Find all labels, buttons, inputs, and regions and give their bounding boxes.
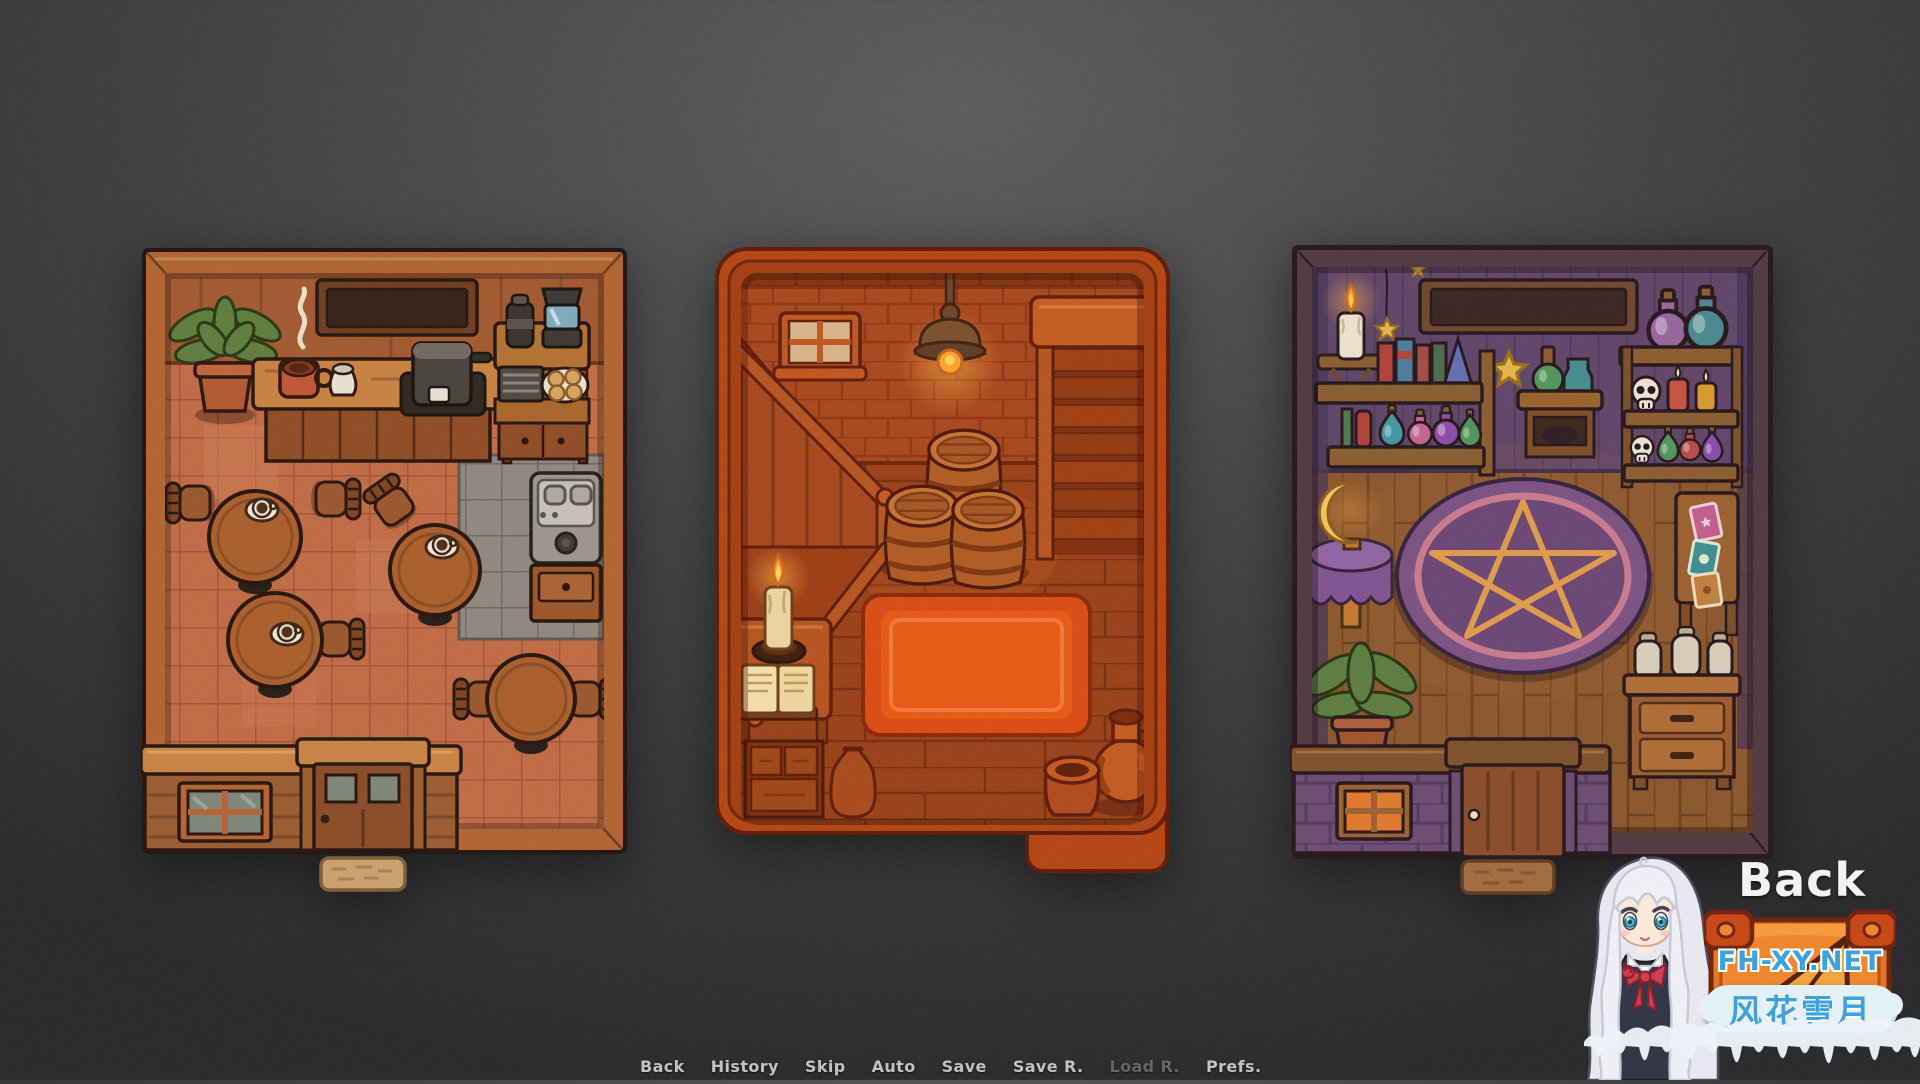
cafe-espresso-machine — [401, 343, 491, 415]
location-choice-witch-shop[interactable] — [1290, 243, 1775, 905]
witch-moon-lamp-table — [1310, 477, 1392, 627]
menu-item-skip[interactable]: Skip — [805, 1057, 846, 1076]
menu-item-save[interactable]: Save — [942, 1057, 987, 1076]
witch-facade — [1290, 739, 1610, 857]
witch-door — [1446, 739, 1580, 857]
menu-item-save-r[interactable]: Save R. — [1013, 1057, 1084, 1076]
cellar-window — [774, 313, 866, 380]
cafe-facade — [141, 739, 461, 850]
cafe-lower-cabinet — [531, 565, 601, 621]
cellar-crates — [745, 741, 823, 817]
cellar-pot — [1045, 757, 1099, 815]
witch-shop-illustration — [1290, 243, 1775, 905]
cafe-pastry-plate — [542, 368, 588, 402]
tarot-card — [1690, 503, 1723, 542]
menu-item-auto[interactable]: Auto — [872, 1057, 916, 1076]
cafe-window — [179, 783, 271, 841]
quick-menu-bar: Back History Skip Auto Save Save R. Load… — [640, 1057, 1261, 1076]
location-choice-cafe[interactable] — [141, 247, 628, 895]
menu-item-prefs[interactable]: Prefs. — [1206, 1057, 1261, 1076]
witch-sign-board — [1420, 280, 1637, 333]
menu-item-history[interactable]: History — [711, 1057, 779, 1076]
snow-icicles — [1584, 1016, 1920, 1080]
watermark-site-name: FH-XY.NET — [1698, 946, 1902, 977]
cafe-chair — [311, 479, 360, 519]
cafe-cream-pitcher — [330, 364, 356, 395]
cellar-open-book — [739, 665, 817, 719]
cellar-room-illustration — [715, 247, 1170, 875]
location-choice-cellar[interactable] — [715, 247, 1170, 875]
watermark-back-label: Back — [1722, 853, 1882, 907]
cafe-doormat — [321, 858, 405, 890]
menu-item-load-r[interactable]: Load R. — [1109, 1057, 1180, 1076]
cafe-toast-tray — [499, 367, 543, 401]
tarot-card — [1692, 572, 1722, 607]
watermark-snow-drip — [1584, 1016, 1920, 1080]
cafe-room-illustration — [141, 247, 628, 895]
witch-jars — [1635, 627, 1732, 679]
witch-jar-cabinet — [1624, 627, 1740, 789]
witch-pentagram-rug — [1393, 479, 1653, 682]
witch-window — [1337, 783, 1411, 839]
cafe-stove — [531, 473, 601, 563]
cafe-jar — [507, 295, 533, 347]
menu-item-back[interactable]: Back — [640, 1057, 685, 1076]
girl-rose-pin — [1622, 966, 1634, 978]
cafe-chair — [166, 483, 215, 523]
cafe-menu-board — [317, 280, 477, 335]
cafe-coffee-grinder — [543, 289, 581, 347]
cafe-door — [297, 739, 429, 850]
cellar-rug — [863, 595, 1090, 735]
witch-doormat — [1462, 861, 1554, 893]
